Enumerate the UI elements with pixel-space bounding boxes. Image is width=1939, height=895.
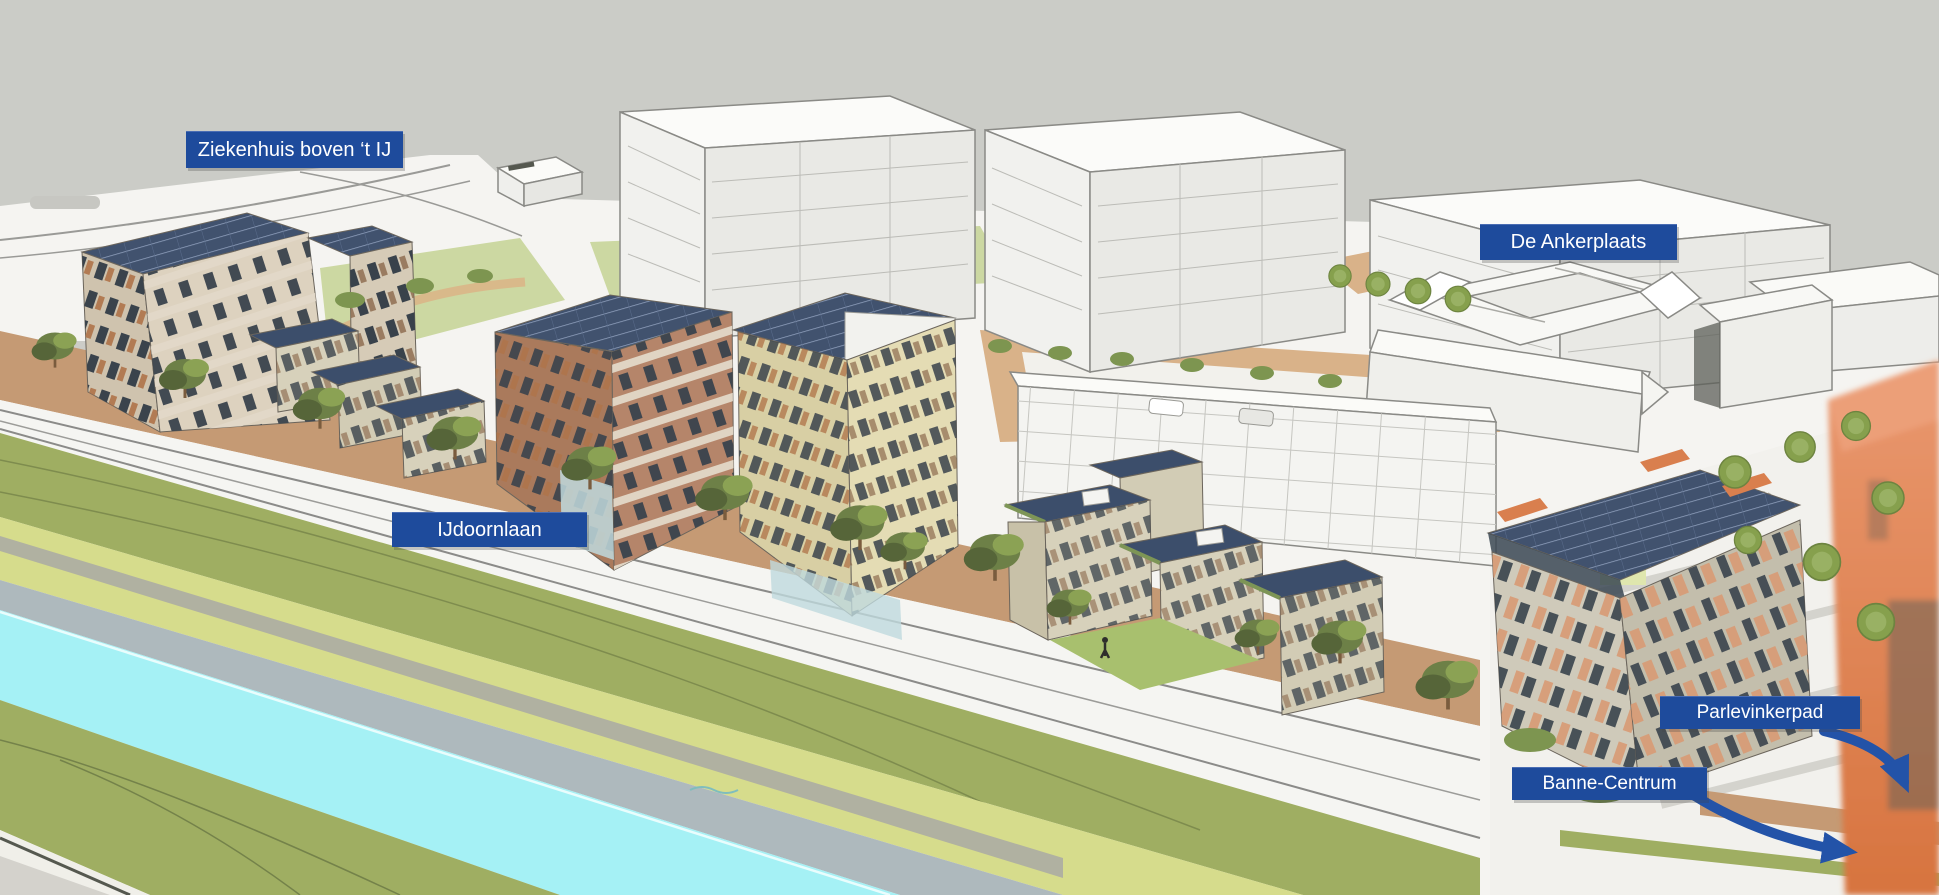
massing-block-1 bbox=[620, 96, 975, 338]
plaza-tree bbox=[1872, 482, 1904, 514]
label-ziekenhuis-boven-t-ij: Ziekenhuis boven ‘t IJ bbox=[186, 131, 403, 168]
plaza-tree bbox=[1858, 604, 1895, 641]
plaza-tree bbox=[1445, 286, 1471, 312]
plaza-tree bbox=[1734, 526, 1761, 553]
massing-block-2 bbox=[985, 112, 1345, 372]
plaza-tree bbox=[1785, 432, 1815, 462]
label-de-ankerplaats: De Ankerplaats bbox=[1480, 224, 1677, 260]
plaza-tree bbox=[1405, 278, 1431, 304]
plaza-tree bbox=[1719, 456, 1751, 488]
label-banne-centrum: Banne-Centrum bbox=[1512, 767, 1707, 800]
right-apartment-building bbox=[1488, 449, 1812, 803]
label-ijdoornlaan: IJdoornlaan bbox=[392, 512, 587, 547]
plaza-tree bbox=[1366, 272, 1390, 296]
site-plan-rendering: Ziekenhuis boven ‘t IJ De Ankerplaats IJ… bbox=[0, 0, 1939, 895]
label-parlevinkerpad: Parlevinkerpad bbox=[1660, 696, 1860, 729]
plaza-tree bbox=[1329, 265, 1351, 287]
plaza-tree bbox=[1842, 412, 1871, 441]
plaza-tree bbox=[1804, 544, 1841, 581]
